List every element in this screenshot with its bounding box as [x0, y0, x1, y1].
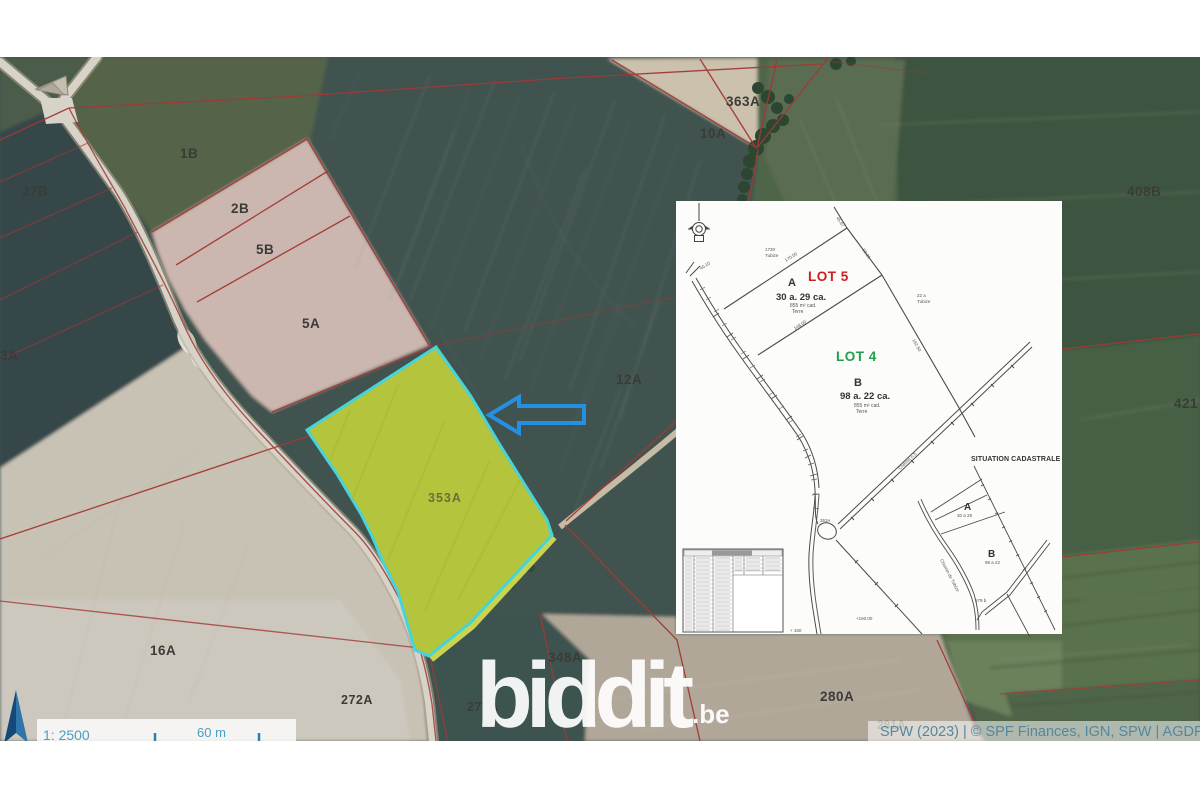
svg-text:B: B — [854, 377, 862, 389]
svg-text:1: 2500: 1: 2500 — [43, 727, 90, 743]
svg-text:LOT 5: LOT 5 — [808, 269, 849, 284]
svg-text:Tubize: Tubize — [917, 299, 931, 304]
svg-text:12A: 12A — [616, 372, 642, 387]
svg-text:A: A — [964, 502, 971, 513]
svg-text:Terre: Terre — [792, 309, 804, 315]
svg-text:3A: 3A — [0, 348, 18, 363]
svg-text:5A: 5A — [302, 316, 320, 331]
svg-text:Tubize: Tubize — [765, 253, 779, 258]
svg-text:30 a. 29 ca.: 30 a. 29 ca. — [776, 292, 826, 303]
svg-text:353A: 353A — [820, 518, 831, 523]
svg-text:98 a 22: 98 a 22 — [985, 560, 1001, 565]
svg-text:353A: 353A — [428, 491, 462, 505]
svg-text:363A: 363A — [726, 94, 760, 109]
svg-text:421: 421 — [1174, 396, 1198, 411]
svg-text:Terre: Terre — [856, 409, 868, 415]
svg-text:2B: 2B — [231, 201, 249, 216]
svg-text:biddit: biddit — [476, 643, 693, 747]
svg-text:272A: 272A — [341, 693, 373, 707]
svg-text:408B: 408B — [1127, 184, 1161, 199]
svg-text:16A: 16A — [150, 643, 176, 658]
svg-text:+160.00: +160.00 — [856, 616, 873, 621]
svg-text:+ 160: + 160 — [790, 628, 802, 633]
svg-text:1B: 1B — [180, 146, 198, 161]
svg-text:LOT 4: LOT 4 — [836, 349, 877, 364]
svg-text:27B: 27B — [22, 184, 48, 199]
svg-text:SPW (2023) | © SPF Finances, I: SPW (2023) | © SPF Finances, IGN, SPW | … — [880, 724, 1200, 740]
svg-text:579 b: 579 b — [975, 598, 987, 603]
svg-text:98 a. 22 ca.: 98 a. 22 ca. — [840, 391, 890, 402]
svg-text:.be: .be — [692, 699, 730, 729]
svg-text:1730: 1730 — [765, 247, 776, 252]
svg-text:60 m: 60 m — [197, 725, 226, 740]
svg-text:SITUATION CADASTRALE: SITUATION CADASTRALE — [971, 456, 1061, 463]
svg-text:22 a: 22 a — [917, 293, 926, 298]
svg-text:10A: 10A — [700, 126, 726, 141]
svg-text:B: B — [988, 549, 995, 560]
svg-text:5B: 5B — [256, 242, 274, 257]
svg-text:A: A — [788, 277, 796, 289]
svg-text:30 a 29: 30 a 29 — [957, 513, 973, 518]
svg-text:280A: 280A — [820, 689, 854, 704]
